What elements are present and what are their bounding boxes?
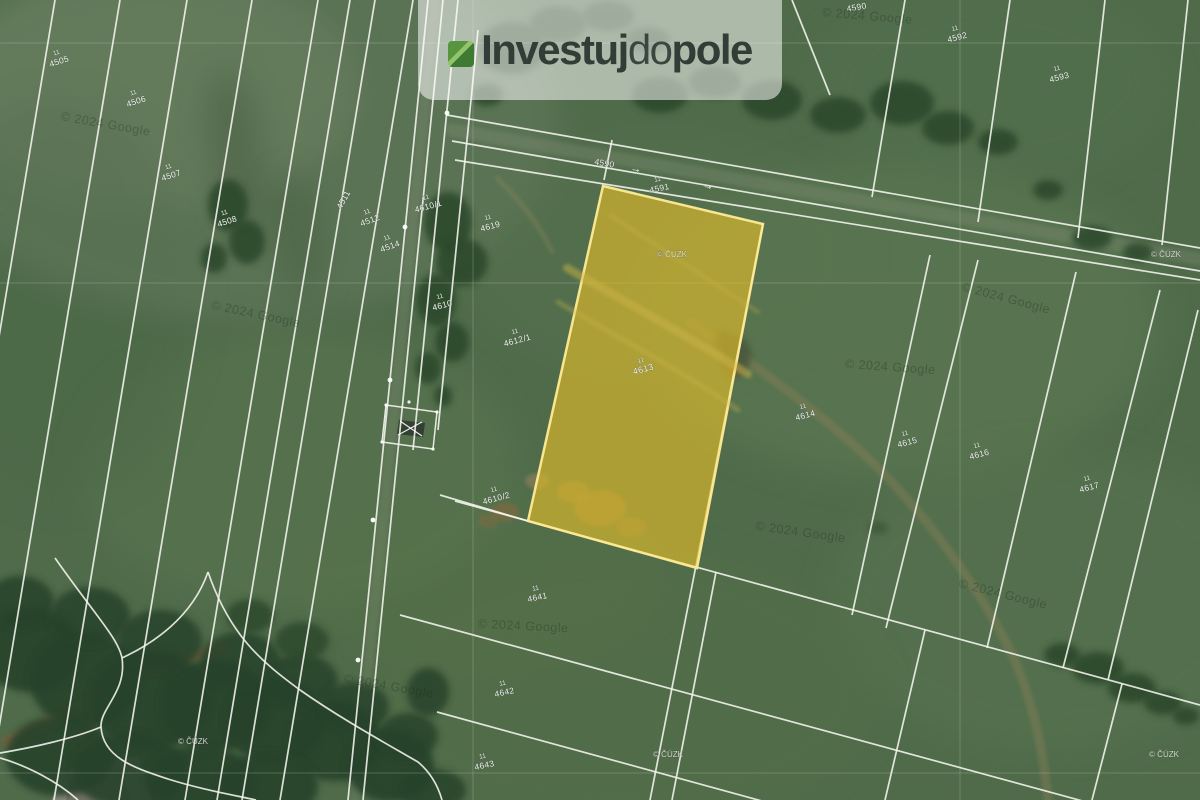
logo-box: Investuj do pole [418, 0, 782, 100]
field-icon [448, 41, 474, 67]
cuzk-watermark: © ČÚZK [178, 737, 209, 746]
structure-corner-dot [407, 400, 410, 403]
cuzk-watermark: © ČÚZK [1149, 750, 1180, 759]
survey-point-dot [445, 111, 450, 116]
survey-point-dot [388, 378, 393, 383]
logo-text-investuj: Investuj [481, 0, 628, 100]
tree [435, 322, 469, 362]
structure-corner-dot [380, 440, 383, 443]
tree [415, 352, 441, 384]
survey-point-dot [403, 225, 408, 230]
tree [229, 220, 265, 264]
shrub [478, 514, 498, 528]
tree [118, 610, 202, 672]
tree [810, 97, 866, 133]
structure-corner-dot [431, 447, 434, 450]
structure-corner-dot [435, 410, 438, 413]
tree [922, 111, 974, 145]
survey-point-dot [371, 518, 376, 523]
tree [201, 243, 227, 273]
road-arrow: → [629, 162, 642, 176]
cuzk-watermark: © ČÚZK [1151, 250, 1182, 259]
survey-point-dot [356, 658, 361, 663]
tree [378, 713, 438, 759]
map-canvas: 1145051145061145071145084511114512114514… [0, 0, 1200, 800]
tree [1033, 180, 1063, 200]
tree [870, 81, 934, 125]
structure-corner-dot [384, 403, 387, 406]
satellite-map[interactable]: 1145051145061145071145084511114512114514… [0, 0, 1200, 800]
logo-text-do: do [628, 0, 672, 100]
tree [50, 587, 130, 645]
tree [1173, 707, 1199, 725]
cuzk-watermark: © ČÚZK [653, 750, 684, 759]
tree [275, 622, 329, 660]
logo-text-pole: pole [672, 0, 752, 100]
road-arrow: → [701, 179, 714, 193]
tree [978, 129, 1018, 155]
cuzk-watermark: © ČÚZK [657, 250, 688, 259]
